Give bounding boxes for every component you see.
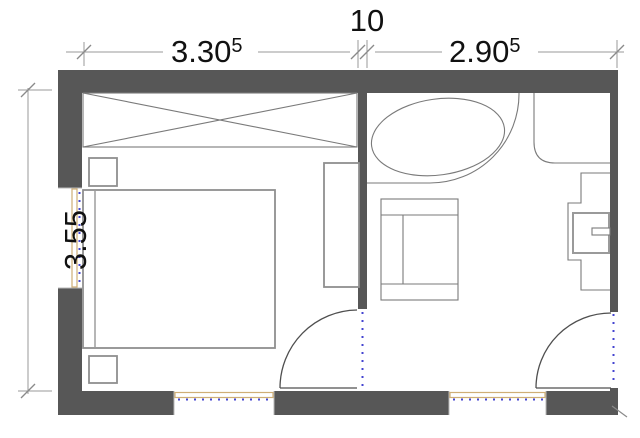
bedroom <box>83 93 359 383</box>
dresser <box>324 163 359 287</box>
nightstand-bottom <box>89 356 117 383</box>
wall-bottom-right <box>546 391 618 415</box>
wall-bottom-middle <box>274 391 449 415</box>
floor-plan: 3.305 10 2.905 3.55 <box>0 0 640 438</box>
door-bathroom <box>536 313 614 388</box>
dimension-label-depth: 3.55 <box>58 210 93 270</box>
wall-left-lower <box>58 288 82 391</box>
door-bedroom <box>280 310 363 388</box>
wall-bottom-left <box>58 391 174 415</box>
faucet <box>592 228 610 235</box>
door-swing-arc <box>536 313 611 388</box>
window-frame <box>175 393 273 398</box>
dimension-label-bedroom-width: 3.305 <box>171 34 242 69</box>
bathroom <box>366 90 610 300</box>
window-bottom-bathroom <box>449 391 546 415</box>
window-frame <box>450 393 545 398</box>
wall-right-upper <box>610 93 618 312</box>
floor-plan-drawing: 3.305 10 2.905 3.55 <box>0 0 640 438</box>
dimension-label-bathroom-width: 2.905 <box>449 34 520 69</box>
door-swing-arc <box>280 310 357 388</box>
bathtub <box>366 90 509 184</box>
window-bottom-bedroom <box>174 391 274 415</box>
dimension-top: 3.305 10 2.905 <box>66 3 624 69</box>
washing-machine <box>381 199 458 300</box>
bed <box>83 190 275 348</box>
dimension-label-wall-thickness: 10 <box>350 3 384 38</box>
wall-left-upper <box>58 93 82 188</box>
wall-right-lower <box>610 388 618 415</box>
nightstand-top <box>89 158 117 186</box>
shower-enclosure <box>534 93 610 163</box>
wall-top <box>58 70 618 93</box>
